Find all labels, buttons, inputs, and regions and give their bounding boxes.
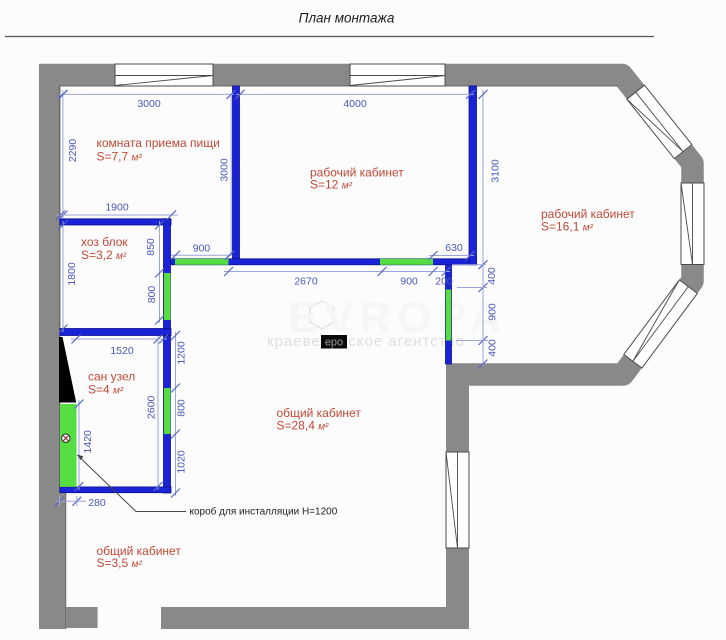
svg-text:1420: 1420 bbox=[82, 430, 94, 454]
svg-text:3000: 3000 bbox=[218, 158, 230, 182]
svg-text:200: 200 bbox=[435, 276, 453, 288]
svg-text:4000: 4000 bbox=[343, 98, 367, 110]
svg-text:комната приема пищи: комната приема пищи bbox=[97, 136, 220, 150]
svg-text:короб для инсталляции Н=1200: короб для инсталляции Н=1200 bbox=[190, 506, 338, 518]
svg-text:1020: 1020 bbox=[176, 450, 188, 474]
svg-text:900: 900 bbox=[400, 276, 418, 288]
svg-text:850: 850 bbox=[145, 238, 157, 256]
svg-text:S=16,1 м²: S=16,1 м² bbox=[541, 220, 594, 234]
svg-text:краеведческое агентство: краеведческое агентство bbox=[267, 333, 465, 350]
svg-text:800: 800 bbox=[176, 399, 188, 417]
svg-text:400: 400 bbox=[486, 267, 498, 285]
svg-text:S=4 м²: S=4 м² bbox=[88, 383, 124, 397]
svg-text:630: 630 bbox=[445, 242, 463, 254]
svg-text:2290: 2290 bbox=[67, 139, 79, 163]
svg-text:3000: 3000 bbox=[137, 98, 161, 110]
svg-text:900: 900 bbox=[193, 243, 211, 255]
svg-text:280: 280 bbox=[88, 497, 106, 509]
svg-text:1200: 1200 bbox=[176, 341, 188, 365]
svg-text:S=28,4 м²: S=28,4 м² bbox=[277, 419, 330, 433]
svg-text:1900: 1900 bbox=[105, 202, 129, 214]
svg-text:S=3,2 м²: S=3,2 м² bbox=[81, 248, 127, 262]
svg-text:S=12 м²: S=12 м² bbox=[310, 178, 353, 192]
svg-text:900: 900 bbox=[486, 303, 498, 321]
svg-text:1800: 1800 bbox=[66, 262, 78, 286]
svg-text:План монтажа: План монтажа bbox=[299, 11, 395, 26]
svg-text:800: 800 bbox=[146, 286, 158, 304]
svg-text:2670: 2670 bbox=[294, 276, 318, 288]
svg-text:1520: 1520 bbox=[110, 345, 134, 357]
svg-text:2600: 2600 bbox=[145, 395, 157, 419]
svg-text:хоз блок: хоз блок bbox=[81, 235, 128, 249]
svg-text:сан узел: сан узел bbox=[88, 370, 135, 384]
svg-text:3100: 3100 bbox=[489, 159, 501, 183]
svg-text:400: 400 bbox=[486, 339, 498, 357]
svg-text:еро: еро bbox=[325, 337, 343, 349]
svg-text:S=7,7 м²: S=7,7 м² bbox=[97, 150, 143, 164]
svg-text:S=3,5 м²: S=3,5 м² bbox=[97, 556, 143, 570]
